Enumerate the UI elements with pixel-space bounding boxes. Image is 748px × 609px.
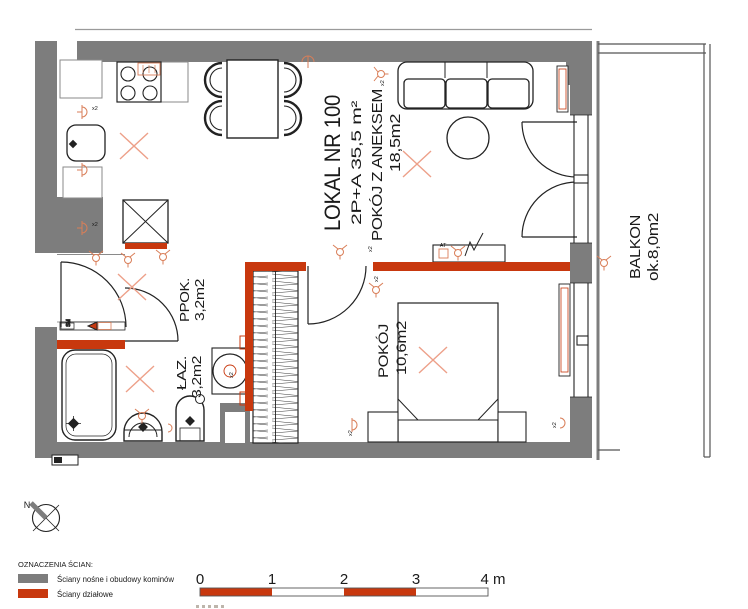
wall-top-notch [57,41,77,62]
kitchen-counter-top [60,60,102,98]
scale-tick-0: 0 [196,571,204,588]
room-label-bath: ŁAZ. [175,356,189,390]
legend-heading: OZNACZENIA ŚCIAN: [18,560,93,569]
scale-seg-white [272,588,344,596]
room-label-hall: PPOK. [178,278,192,322]
room-label-bedroom: POKÓJ [375,324,391,378]
wall-bottom [35,442,592,458]
nightstand-right [498,412,526,442]
compass-n: N [24,500,31,510]
wall-right-corner [566,41,592,85]
washbasin [176,395,205,442]
wall-right-bottom [570,397,592,458]
wall-left-lower [35,327,57,458]
antenna-outlet-label: AT [440,243,447,249]
socket-count: x2 [92,106,98,112]
kitchen-sink [67,125,105,161]
chimney-shaft [123,200,168,243]
partition-bedroom-right [373,262,570,271]
dining-table [227,60,278,138]
stove [117,62,161,102]
entrance-step-detail [54,457,62,463]
scale-tick-2: 2 [340,571,348,588]
bath-pillar-notch [225,412,245,443]
legend-swatch-partition [18,589,48,598]
socket-count: x2 [368,246,374,252]
scale-tick-3: 3 [412,571,420,588]
kitchen-counter-right [161,62,188,102]
radiator-living [557,66,568,112]
room-label-balcony: BALKON [627,215,644,279]
partition-bath [57,340,125,349]
partition-bedroom-left [245,262,306,271]
room-area-hall: 3,2m2 [193,279,207,321]
socket-count: x2 [374,276,380,282]
legend-label-bearing: Ściany nośne i obudowy kominów [57,575,174,584]
intercom-label: SM [66,319,72,327]
legend-swatch-bearing [18,574,48,583]
socket-count: x2 [380,80,386,86]
scale-tick-1: 1 [268,571,276,588]
floor-plan: AT [0,0,748,609]
legend-label-partition: Ściany działowe [57,590,113,599]
scale-seg-red [344,588,416,596]
floor-plan-canvas: AT [0,0,748,609]
scale-tick-4: 4 m [480,571,505,588]
socket-count: x2 [92,222,98,228]
wardrobe [253,271,298,443]
unit-title: LOKAL NR 100 [320,95,345,231]
coffee-table [447,117,489,159]
unit-subtitle: 2P+A 35,5 m² [348,100,364,225]
bed [398,303,498,442]
room-area-bedroom: 10,6m2 [393,320,409,375]
room-area-living: 18,5m2 [388,114,404,172]
partition-chimney-cap [125,243,167,249]
partition-wardrobe-side [245,271,253,411]
scale-seg-red [200,588,272,596]
scale-seg-white [416,588,488,596]
shower-tray [62,350,116,440]
socket-count: x2 [552,422,558,428]
room-area-bath: 3,2m2 [190,356,204,398]
sofa [398,62,533,109]
radiator-bedroom [559,284,570,376]
room-area-balcony: ok.8,0m2 [645,213,662,281]
room-label-living: POKÓJ Z ANEKSEM [369,89,386,241]
nightstand-left [368,412,398,442]
socket-count: x2 [348,430,354,436]
socket-count: x2 [229,372,235,378]
wall-right-mid [570,243,592,283]
